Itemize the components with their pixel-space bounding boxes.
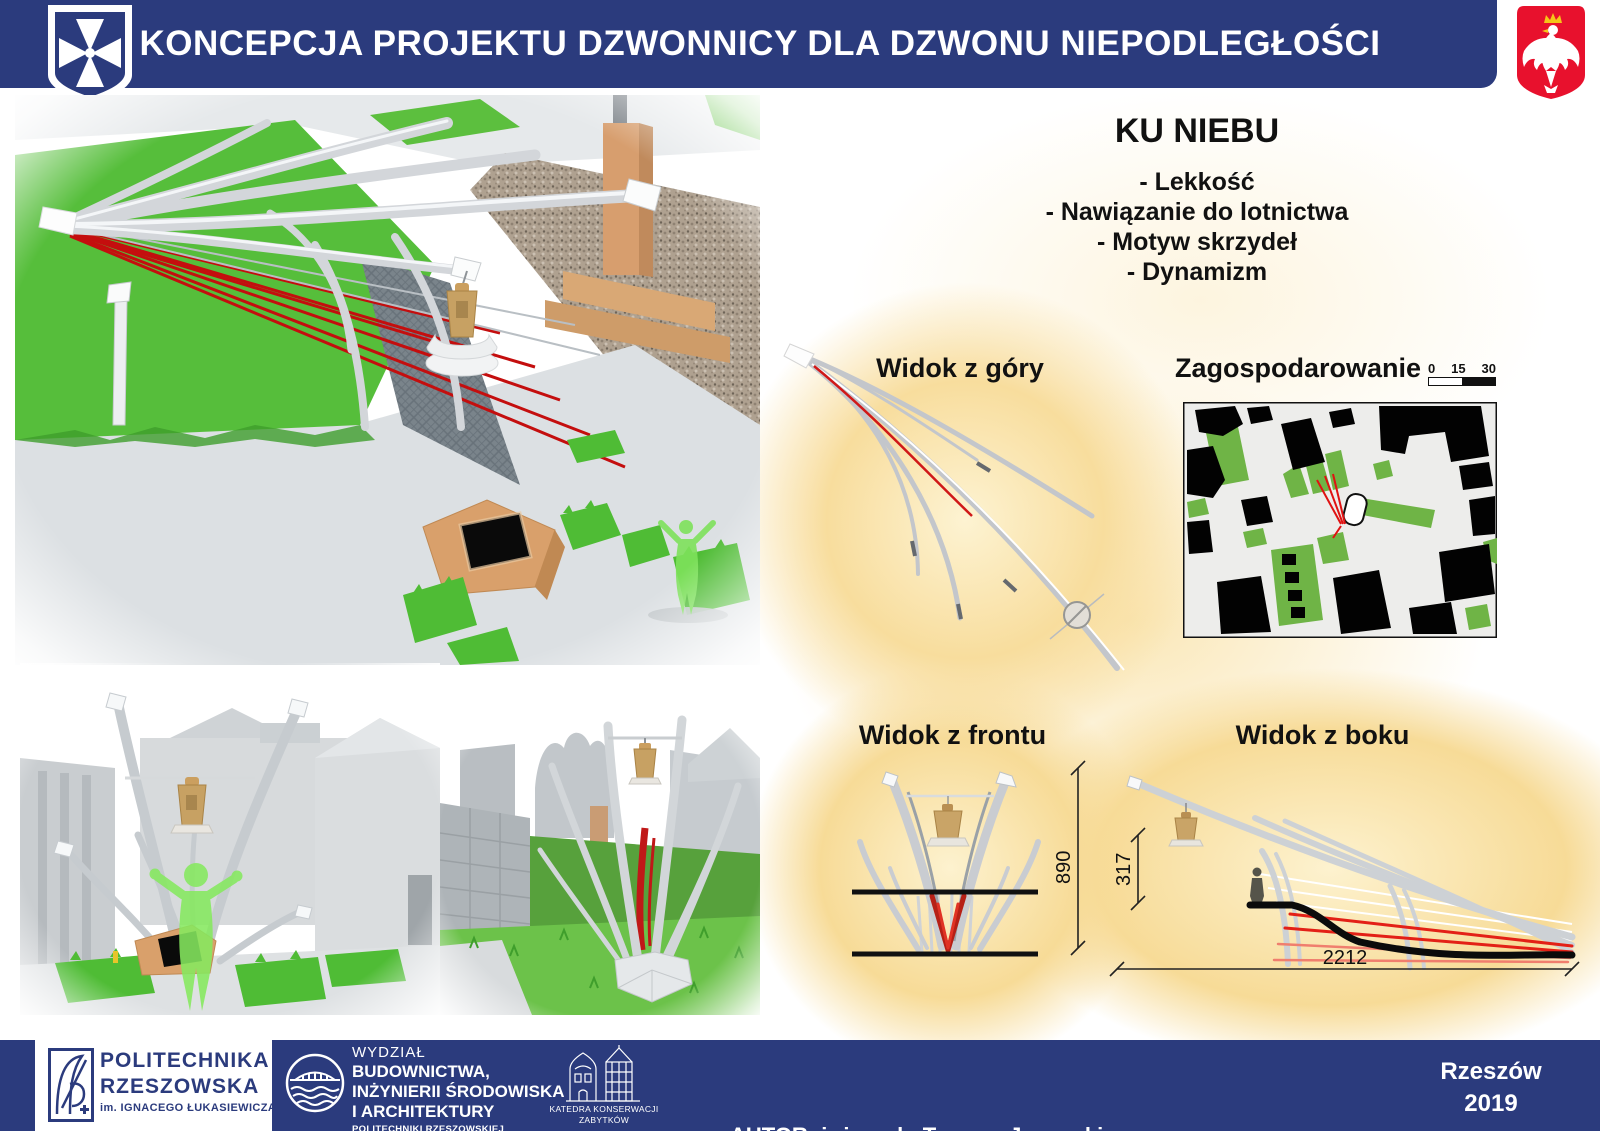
dimension-890-label: 890 <box>1053 851 1075 884</box>
university-line3: im. IGNACEGO ŁUKASIEWICZA <box>100 1103 276 1114</box>
render-vignette <box>440 688 760 1015</box>
concept-bullet: - Nawiązanie do lotnictwa <box>977 197 1417 227</box>
dimension-2212-label: 2212 <box>1323 947 1368 969</box>
concept-block: KU NIEBU - Lekkość - Nawiązanie do lotni… <box>977 112 1417 287</box>
department-name: KATEDRA KONSERWACJI ZABYTKÓW <box>538 1104 670 1126</box>
label-side-view: Widok z boku <box>1200 720 1445 751</box>
concept-bullet: - Lekkość <box>977 167 1417 197</box>
faculty-line4: I ARCHITEKTURY <box>352 1103 565 1120</box>
dimension-317-label: 317 <box>1113 853 1135 886</box>
map-scale-bar: 0 15 30 <box>1428 361 1496 386</box>
year-label: 2019 <box>1426 1088 1556 1120</box>
city-year-block: Rzeszów 2019 <box>1426 1056 1556 1120</box>
concept-bullet: - Motyw skrzydeł <box>977 227 1417 257</box>
university-line1: POLITECHNIKA <box>100 1050 276 1071</box>
beam-tip <box>1127 776 1142 790</box>
department-line1: KATEDRA KONSERWACJI <box>538 1104 670 1115</box>
university-name: POLITECHNIKA RZESZOWSKA im. IGNACEGO ŁUK… <box>100 1050 276 1114</box>
poster-page: KONCEPCJA PROJEKTU DZWONNICY DLA DZWONU … <box>0 0 1600 1131</box>
label-top-view: Widok z góry <box>820 353 1100 384</box>
department-line2: ZABYTKÓW <box>538 1115 670 1126</box>
university-line2: RZESZOWSKA <box>100 1076 276 1097</box>
author-line: AUTOR: inż. arch. Tomasz Jaworski <box>730 1120 1265 1131</box>
concept-heading: KU NIEBU <box>977 112 1417 151</box>
render-perspective-aerial <box>15 95 760 665</box>
site-plan-map <box>1183 402 1497 638</box>
render-street-view <box>20 663 440 1015</box>
render-vignette <box>15 95 760 665</box>
dimension-317: 317 <box>1113 828 1145 910</box>
label-front-view: Widok z frontu <box>830 720 1075 751</box>
scale-tick: 0 <box>1428 361 1435 376</box>
bell-top-view <box>1050 594 1104 639</box>
politechnika-rzeszowska-logo-icon <box>48 1048 94 1122</box>
faculty-line5: POLITECHNIKI RZESZOWSKIEJ <box>352 1125 565 1131</box>
render-vignette <box>20 663 440 1015</box>
label-site-plan: Zagospodarowanie <box>1175 353 1425 384</box>
scale-tick: 15 <box>1451 361 1465 376</box>
city-label: Rzeszów <box>1426 1056 1556 1088</box>
department-logo-icon <box>562 1044 644 1104</box>
faculty-logo-icon <box>283 1051 347 1115</box>
render-closeup-view <box>440 688 760 1015</box>
drawing-top-view <box>772 338 1152 700</box>
faculty-line3: INŻYNIERII ŚRODOWISKA <box>352 1083 565 1100</box>
rzeszow-city-crest-icon <box>45 5 135 106</box>
side-view-drawing <box>1127 776 1572 968</box>
poland-eagle-emblem-icon <box>1515 5 1587 101</box>
technical-drawings: 890 317 <box>830 756 1600 991</box>
bell <box>927 796 969 846</box>
page-title: KONCEPCJA PROJEKTU DZWONNICY DLA DZWONU … <box>160 0 1360 88</box>
scale-bar-segments <box>1428 377 1496 386</box>
faculty-line1: WYDZIAŁ <box>352 1045 565 1060</box>
front-view-drawing <box>852 772 1038 954</box>
beam-joints <box>912 463 1016 619</box>
dimension-890: 890 <box>1053 761 1085 955</box>
credits-block: AUTOR: inż. arch. Tomasz Jaworski PROMOT… <box>730 1056 1265 1131</box>
person-silhouette <box>1250 868 1264 906</box>
beam-tip <box>996 772 1016 787</box>
scale-tick: 30 <box>1482 361 1496 376</box>
faculty-line2: BUDOWNICTWA, <box>352 1063 565 1080</box>
faculty-name: WYDZIAŁ BUDOWNICTWA, INŻYNIERII ŚRODOWIS… <box>352 1045 565 1131</box>
concept-bullet: - Dynamizm <box>977 257 1417 287</box>
